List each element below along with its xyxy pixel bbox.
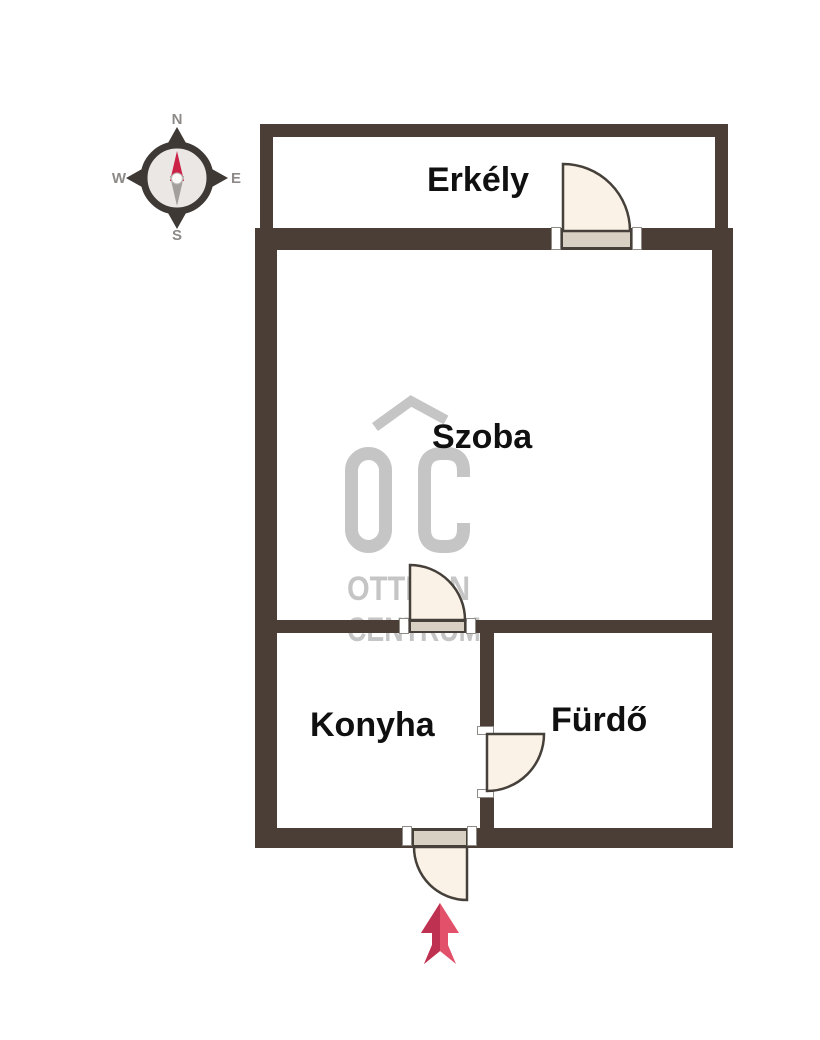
bathroom-door-icon xyxy=(487,734,544,791)
entrance-arrow xyxy=(410,895,470,975)
room-label-furdo: Fürdő xyxy=(551,703,647,737)
compass-label-s: S xyxy=(172,227,182,244)
compass-label-w: W xyxy=(112,170,127,187)
compass-label-n: N xyxy=(172,111,183,128)
room-door-icon xyxy=(410,565,465,620)
compass-rose: N E S W xyxy=(105,100,251,252)
room-label-konyha: Konyha xyxy=(310,708,435,742)
room-label-szoba: Szoba xyxy=(432,420,532,454)
floor-plan-canvas: OTTHON CENTRUM Erkély Szoba Konyha Fürdő xyxy=(0,0,820,1040)
balcony-door-icon xyxy=(563,164,630,231)
entrance-door-icon xyxy=(414,847,467,900)
compass-label-e: E xyxy=(231,170,241,187)
compass-hub-icon xyxy=(172,173,183,184)
room-label-erkely: Erkély xyxy=(427,163,529,197)
entrance-arrow-shade-icon xyxy=(421,903,440,964)
